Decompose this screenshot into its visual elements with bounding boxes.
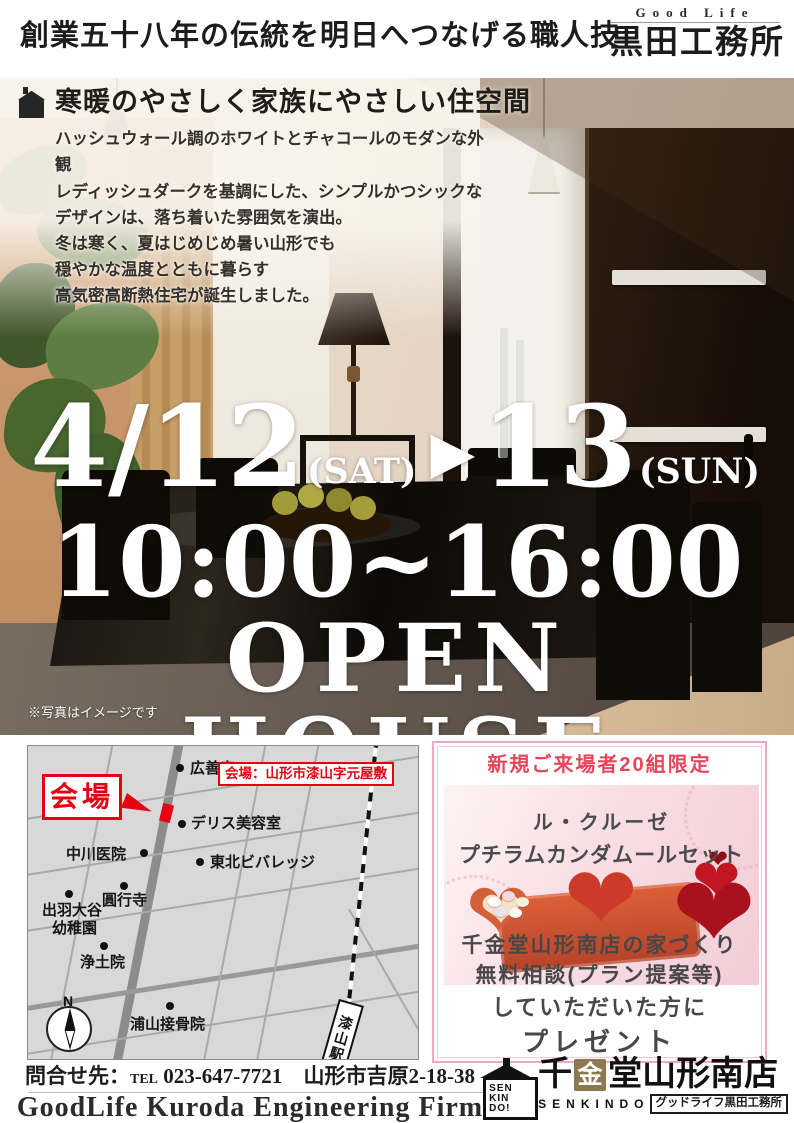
hero-headline: 寒暖のやさしく家族にやさしい住空間 — [55, 86, 531, 118]
senkindo-house-icon: SEN KIN DO! — [480, 1058, 532, 1114]
map-dot — [65, 890, 73, 898]
sugar-almond — [516, 897, 529, 907]
contact-prefix: 問合せ先： — [25, 1064, 130, 1088]
sugar-almond — [494, 907, 507, 917]
description-line: デザインは、落ち着いた雰囲気を演出。 — [55, 205, 488, 231]
badge-text: KIN — [489, 1094, 535, 1104]
floor-lamp-knob — [347, 366, 360, 382]
date-end-day: (SUN) — [637, 454, 764, 495]
logo-wordmark: 千 金 堂 山形南店 SENKINDO グッドライフ黒田工務所 — [538, 1058, 788, 1114]
brand-english: Good Life — [610, 6, 780, 19]
map-label-delis: デリス美容室 — [191, 815, 281, 832]
map-label-tohoku: 東北ビバレッジ — [210, 854, 315, 871]
badge-text: SEN — [489, 1084, 535, 1094]
offer-condition-line2: 無料相談(プラン提案等) — [434, 965, 765, 986]
sugar-almond — [488, 897, 501, 907]
hero-description: ハッシュウォール調のホワイトとチャコールのモダンな外観 レディッシュダークを基調… — [18, 126, 488, 308]
map-dot — [176, 764, 184, 772]
description-line: 高気密高断熱住宅が誕生しました。 — [55, 283, 488, 309]
description-line: 冬は寒く、夏はじめじめ暑い山形でも — [55, 231, 488, 257]
tel-number: 023-647-7721 — [163, 1064, 282, 1088]
event-dates: 4/12 (SAT) ▶ 13 (SUN) — [0, 400, 794, 495]
gift-offer-box: 新規ご来場者20組限定 ❤ ❤ ❤ ❤ ❤ ❤ ル・クルーゼ プチラムカンダムー… — [432, 741, 767, 1063]
map-dot — [120, 882, 128, 890]
date-end: 13 — [481, 400, 637, 495]
station-sign: 漆山駅 — [318, 999, 364, 1060]
offer-condition-line1: 千金堂山形南店の家づくり — [434, 935, 765, 956]
map-label-nakagawa: 中川医院 — [66, 846, 126, 863]
offer-condition-line3: していただいた方に — [434, 997, 765, 1019]
map-dot — [166, 1002, 174, 1010]
hero-photo: 寒暖のやさしく家族にやさしい住空間 ハッシュウォール調のホワイトとチャコールのモ… — [0, 78, 794, 735]
event-time: 10:00~16:00 — [0, 514, 794, 611]
map-label-urayama: 浦山接骨院 — [130, 1016, 205, 1033]
photo-disclaimer: ※写真はイメージです — [28, 706, 158, 719]
venue-address-box: 会場：山形市漆山字元屋敷 — [218, 762, 394, 786]
venue-arrow-icon — [121, 793, 155, 819]
map-road — [348, 909, 419, 1060]
door-slat — [612, 270, 766, 285]
map-dot — [100, 942, 108, 950]
company-address: 山形市吉原2-18-38 — [304, 1064, 476, 1088]
badge-text: DO! — [489, 1104, 535, 1114]
product-name-line1: ル・クルーゼ — [444, 813, 759, 833]
house-icon — [18, 87, 45, 118]
sugar-almond — [509, 908, 522, 918]
offer-present-text: プレゼント — [434, 1029, 765, 1055]
intro-block: 寒暖のやさしく家族にやさしい住空間 ハッシュウォール調のホワイトとチャコールのモ… — [18, 86, 488, 309]
description-line: 穏やかな温度とともに暮らす — [55, 257, 488, 283]
description-line: レディッシュダークを基調にした、シンプルかつシックな — [55, 179, 488, 205]
logo-char: 堂 — [608, 1058, 642, 1092]
contact-line: 問合せ先：TEL 023-647-7721 山形市吉原2-18-38 — [0, 1066, 500, 1087]
senkindo-logo: SEN KIN DO! 千 金 堂 山形南店 SENKINDO グッドライフ黒田… — [480, 1058, 788, 1114]
brand-japanese: 黒田工務所 — [610, 27, 780, 60]
date-start: 4/12 — [30, 400, 305, 495]
railway-line — [345, 745, 378, 1017]
logo-branch: 山形南店 — [642, 1058, 778, 1092]
flyer-page: 創業五十八年の伝統を明日へつなげる職人技 Good Life 黒田工務所 — [0, 0, 794, 1123]
description-line: ハッシュウォール調のホワイトとチャコールのモダンな外観 — [55, 126, 488, 178]
header: 創業五十八年の伝統を明日へつなげる職人技 Good Life 黒田工務所 — [0, 0, 794, 78]
heart-ramekin-icon: ❤ — [564, 855, 638, 943]
product-name-line2: プチラムカンダムールセット — [444, 845, 759, 866]
map-dot — [196, 858, 204, 866]
logo-char: 千 — [538, 1058, 572, 1092]
logo-subtitle-box: グッドライフ黒田工務所 — [650, 1094, 789, 1114]
venue-label-box: 会場 — [42, 774, 122, 820]
map-dot — [140, 849, 148, 857]
offer-limit-text: 新規ご来場者20組限定 — [434, 755, 765, 775]
map-label-dewa-2: 幼稚園 — [52, 920, 97, 937]
map-label-enkoji: 圓行寺 — [102, 892, 147, 909]
venue-marker-icon — [159, 803, 174, 823]
logo-romaji: SENKINDO — [538, 1098, 649, 1110]
map-label-dewa-1: 出羽大谷 — [42, 902, 102, 919]
tel-label: TEL — [130, 1072, 158, 1087]
brand-divider — [610, 22, 780, 23]
access-map: 広善寺 会場：山形市漆山字元屋敷 会場 デリス美容室 中川医院 東北ビバレッジ … — [27, 745, 419, 1060]
brand-block: Good Life 黒田工務所 — [610, 6, 780, 60]
map-label-jodoin: 浄土院 — [80, 954, 125, 971]
company-name-english: GoodLife Kuroda Engineering Firm — [0, 1094, 500, 1122]
sugar-almond — [502, 891, 515, 901]
arrow-right-icon: ▶ — [421, 423, 482, 495]
date-start-day: (SAT) — [305, 454, 421, 495]
map-dot — [178, 820, 186, 828]
compass: N — [46, 994, 94, 1056]
company-tagline: 創業五十八年の伝統を明日へつなげる職人技 — [20, 22, 620, 51]
gold-kin-icon: 金 — [574, 1059, 606, 1091]
